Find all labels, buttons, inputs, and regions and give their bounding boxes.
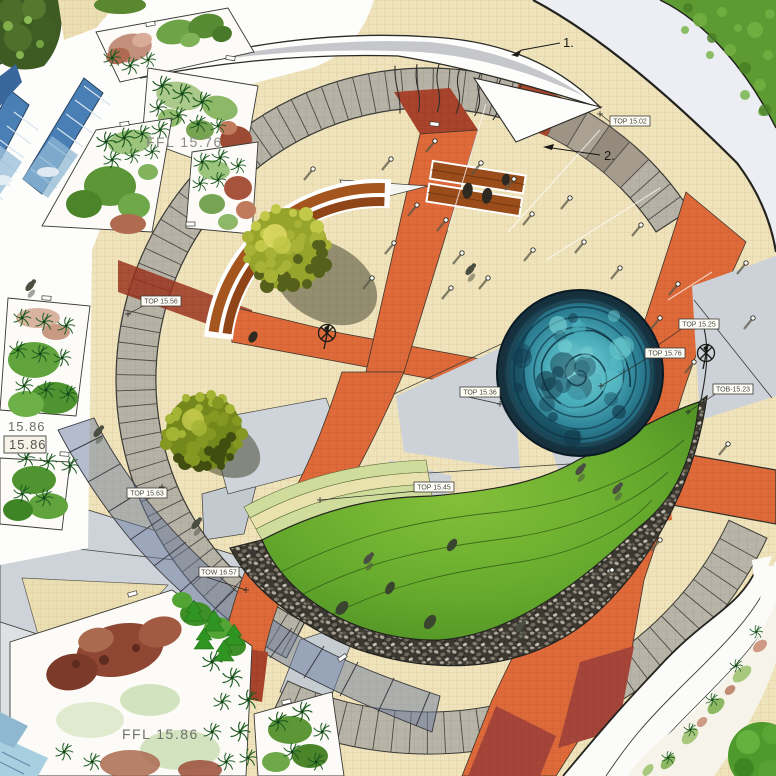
svg-text:1.: 1. bbox=[563, 35, 574, 50]
svg-text:TOB-15.23: TOB-15.23 bbox=[716, 387, 750, 394]
svg-text:TOP 15.76: TOP 15.76 bbox=[648, 351, 682, 358]
svg-text:TOP 15.02: TOP 15.02 bbox=[613, 119, 647, 126]
svg-text:FFL 15.86: FFL 15.86 bbox=[122, 726, 199, 742]
svg-text:TOW 16.57: TOW 16.57 bbox=[201, 570, 237, 577]
svg-text:TOP 15.56: TOP 15.56 bbox=[144, 299, 178, 306]
svg-text:15.86: 15.86 bbox=[9, 437, 47, 452]
svg-text:FFL 15.76: FFL 15.76 bbox=[146, 134, 223, 150]
svg-text:2.: 2. bbox=[604, 148, 615, 163]
svg-text:TOP 15.45: TOP 15.45 bbox=[417, 485, 451, 492]
svg-text:TOP 15.25: TOP 15.25 bbox=[682, 322, 716, 329]
svg-text:TOP 15.63: TOP 15.63 bbox=[130, 491, 164, 498]
svg-text:15.86: 15.86 bbox=[8, 419, 46, 434]
svg-text:TOP 15.36: TOP 15.36 bbox=[463, 390, 497, 397]
